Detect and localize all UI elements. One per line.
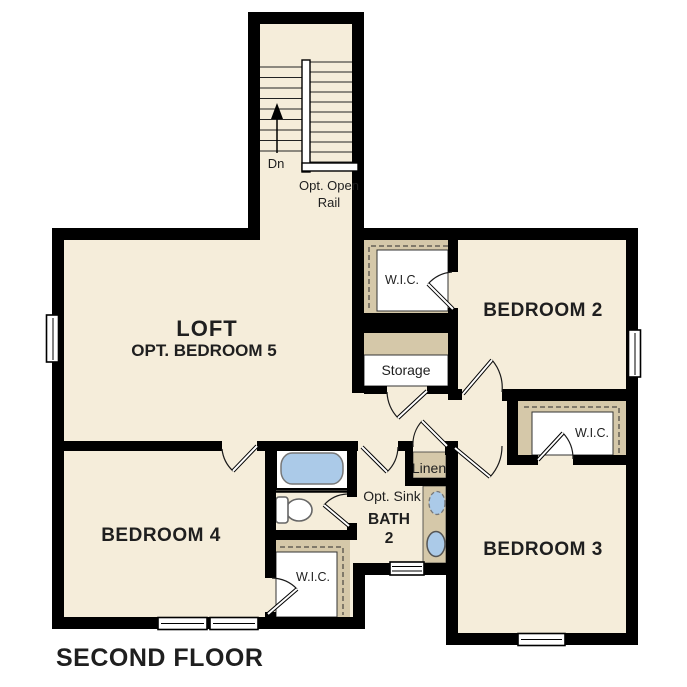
toilet-bowl (286, 499, 312, 521)
wall (364, 386, 387, 394)
wall (265, 441, 276, 578)
wic-bedroom4-label: W.I.C. (296, 570, 330, 584)
bedroom3-label: BEDROOM 3 (483, 539, 603, 560)
vanity-sink (427, 532, 445, 557)
wall (448, 240, 458, 272)
wall (507, 455, 538, 465)
floor-plan: Dn Opt. Open Rail L (0, 0, 687, 687)
wall (265, 530, 357, 540)
toilet (276, 497, 312, 523)
wall (502, 389, 632, 401)
wall (52, 441, 222, 451)
bath-window (390, 562, 424, 575)
wall (448, 308, 458, 400)
toilet-tank (276, 497, 288, 523)
loft-label: LOFT (176, 316, 237, 341)
wall (448, 389, 462, 400)
floor-plan-page: Dn Opt. Open Rail L (0, 0, 687, 687)
page-title: SECOND FLOOR (56, 644, 263, 672)
storage-label: Storage (381, 362, 430, 378)
wic-bedroom2-label: W.I.C. (385, 273, 419, 287)
loft-option-label: OPT. BEDROOM 5 (131, 341, 276, 360)
wall (364, 313, 448, 333)
wall (427, 386, 448, 394)
linen-label: Linen (412, 460, 446, 476)
bedroom4-window-right (210, 618, 258, 630)
bath-label-line2: 2 (385, 530, 394, 547)
bathtub (276, 448, 348, 492)
bedroom3-window (518, 634, 565, 646)
wic-bedroom3-label: W.I.C. (575, 426, 609, 440)
wall (573, 455, 626, 465)
bath-label-line1: BATH (368, 511, 410, 528)
optional-sink (429, 492, 445, 515)
bedroom4-label: BEDROOM 4 (101, 525, 221, 546)
bedroom4-window-left (158, 618, 207, 630)
bedroom2-window (629, 330, 641, 377)
opt-sink-label: Opt. Sink (363, 488, 422, 504)
bathtub-basin (281, 453, 343, 484)
wall (352, 240, 364, 393)
wall (347, 441, 357, 497)
wic-bedroom4-interior (276, 552, 337, 617)
wall (413, 478, 446, 486)
stair-down-label: Dn (268, 156, 285, 171)
storage-shelving (364, 333, 448, 355)
opt-open-rail-label-line2: Rail (318, 195, 341, 210)
wall (446, 441, 458, 571)
opt-open-rail-label-line1: Opt. Open (299, 178, 359, 193)
bedroom2-label: BEDROOM 2 (483, 300, 603, 321)
loft-window (47, 315, 59, 362)
